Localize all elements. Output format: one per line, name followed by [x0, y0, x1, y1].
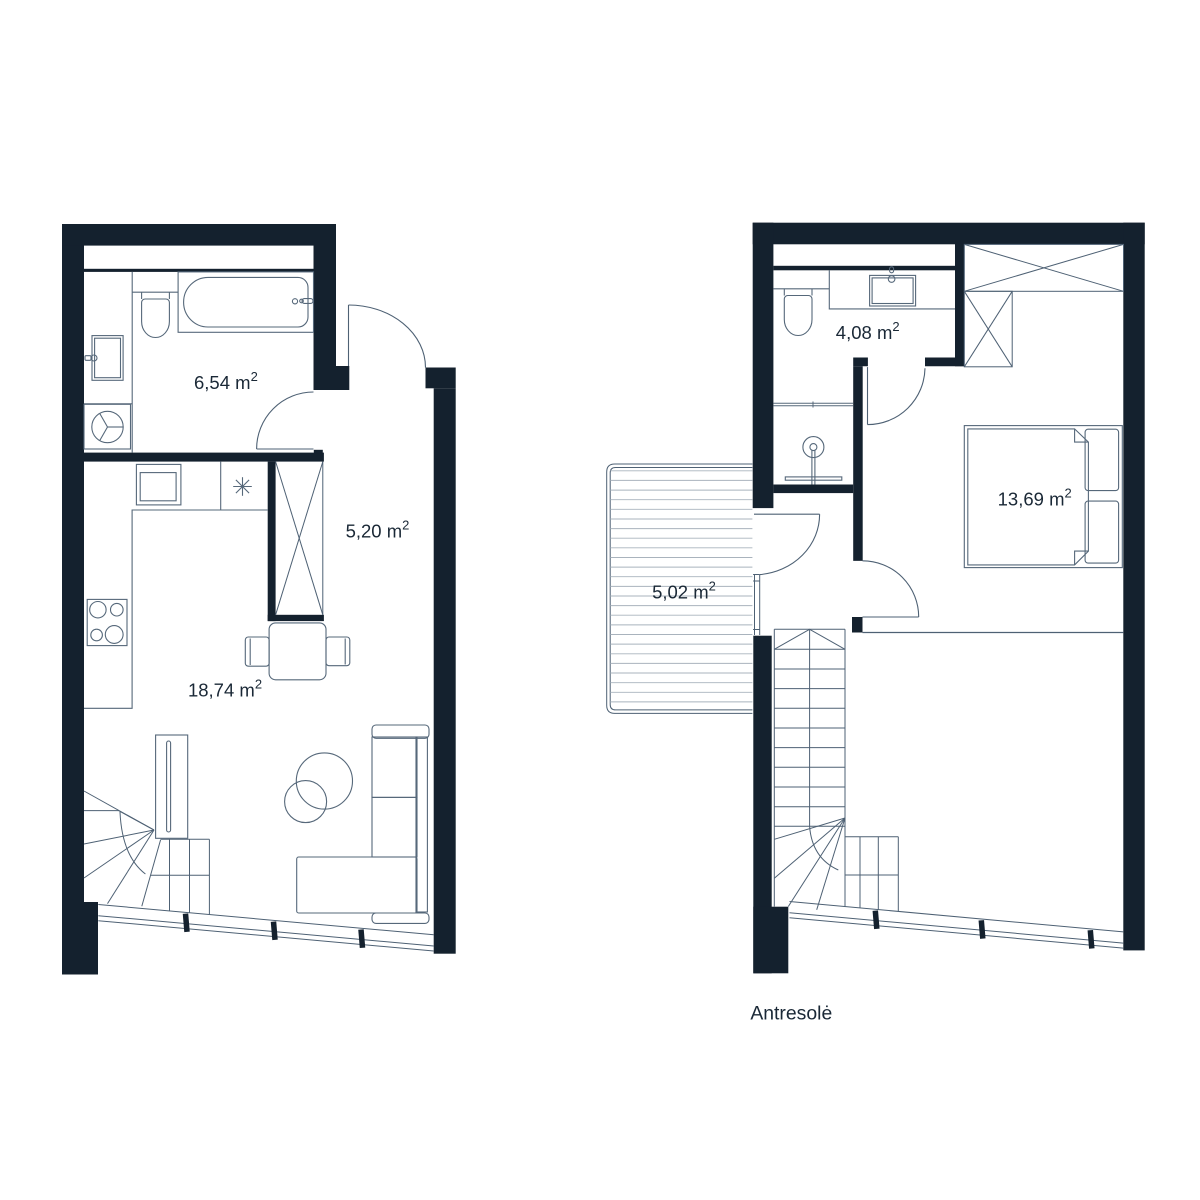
svg-text:6,54 m2: 6,54 m2 [194, 369, 258, 393]
svg-text:5,02 m2: 5,02 m2 [652, 579, 716, 603]
svg-text:Antresolė: Antresolė [750, 1003, 832, 1025]
svg-text:13,69 m2: 13,69 m2 [998, 486, 1072, 510]
svg-text:5,20 m2: 5,20 m2 [346, 518, 410, 542]
svg-text:18,74 m2: 18,74 m2 [188, 677, 262, 701]
svg-text:4,08 m2: 4,08 m2 [836, 319, 900, 343]
